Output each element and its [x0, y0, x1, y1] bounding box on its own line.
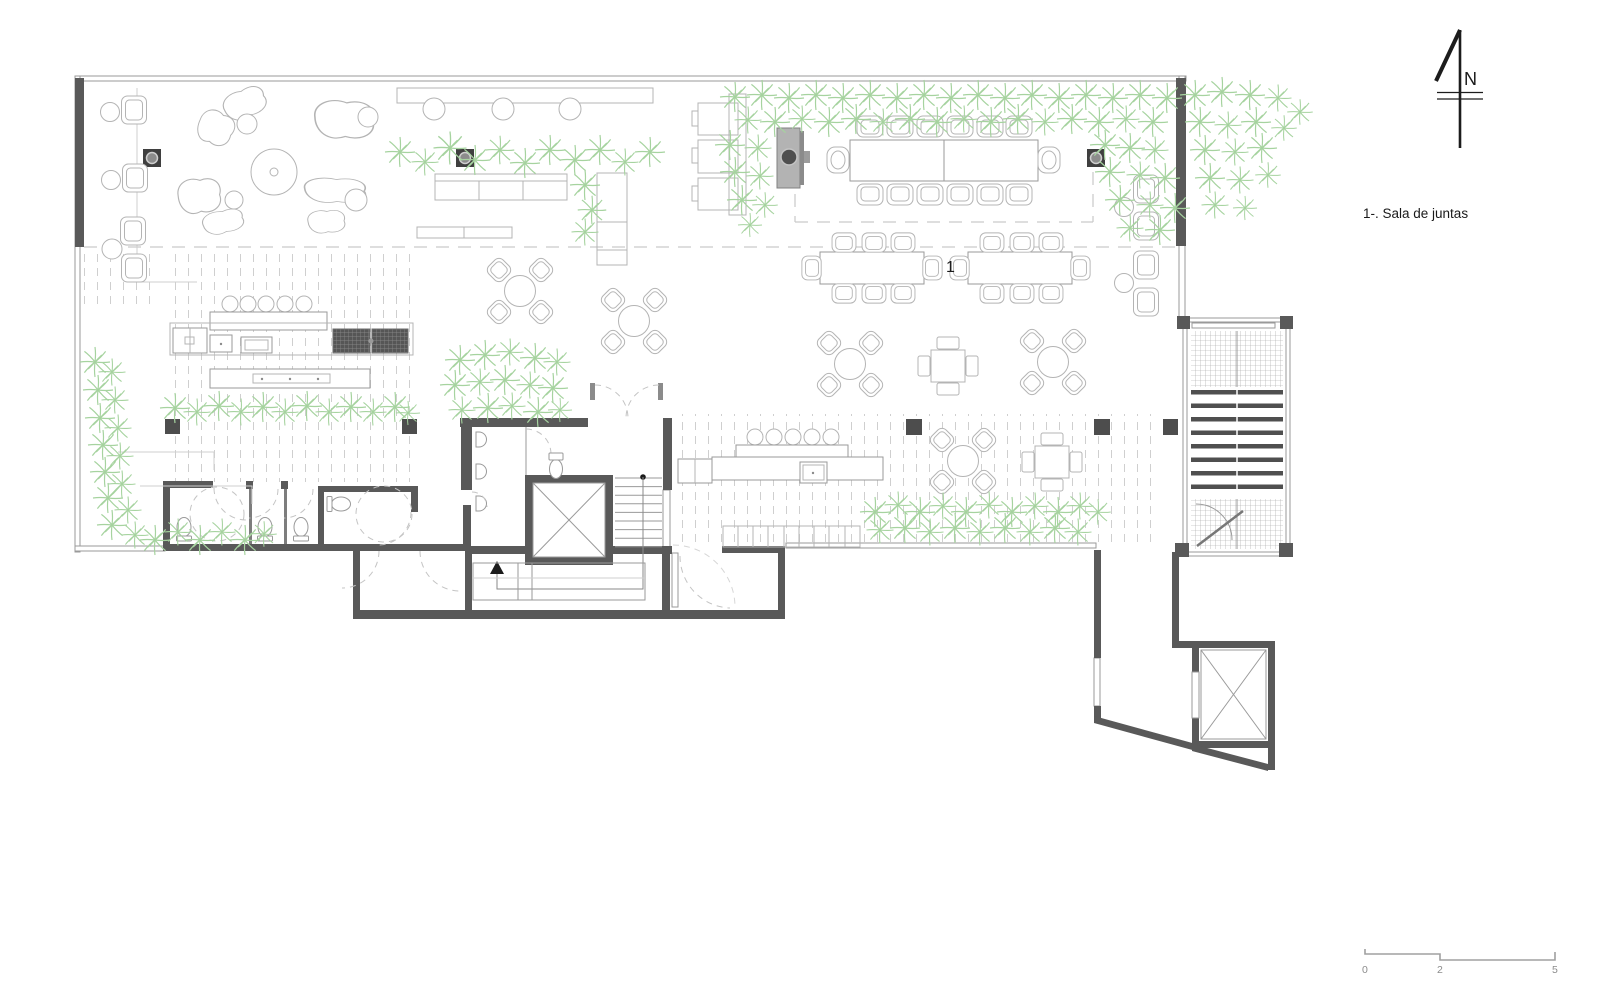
- scale-tick-5: 5: [1552, 964, 1558, 976]
- column-icon: [402, 419, 417, 434]
- column-icon: [906, 419, 922, 435]
- legend-item-sala-de-juntas: 1-. Sala de juntas: [1363, 206, 1468, 221]
- scale-tick-2: 2: [1437, 964, 1443, 976]
- scale-tick-0: 0: [1362, 964, 1368, 976]
- column-icon: [143, 149, 161, 167]
- toilet-icon: [294, 518, 309, 542]
- floor-plan-drawing: 1 N 1-. Sala de juntas 0 2 5: [0, 0, 1600, 1002]
- column-icon: [165, 419, 180, 434]
- floor-plan-screenshot: 1 N 1-. Sala de juntas 0 2 5: [0, 0, 1600, 1002]
- north-label: N: [1464, 69, 1477, 89]
- toilet-icon: [549, 453, 563, 479]
- room-number-label: 1: [946, 259, 955, 276]
- column-icon: [1094, 419, 1110, 435]
- toilet-icon: [327, 497, 351, 512]
- column-icon: [1163, 419, 1178, 435]
